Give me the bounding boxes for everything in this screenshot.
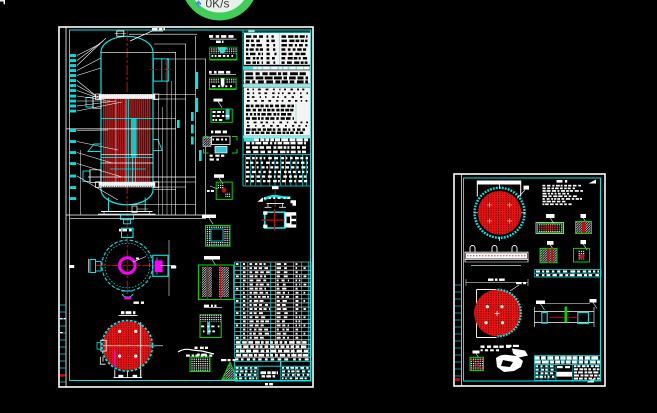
svg-text:0K/s: 0K/s	[206, 0, 230, 11]
